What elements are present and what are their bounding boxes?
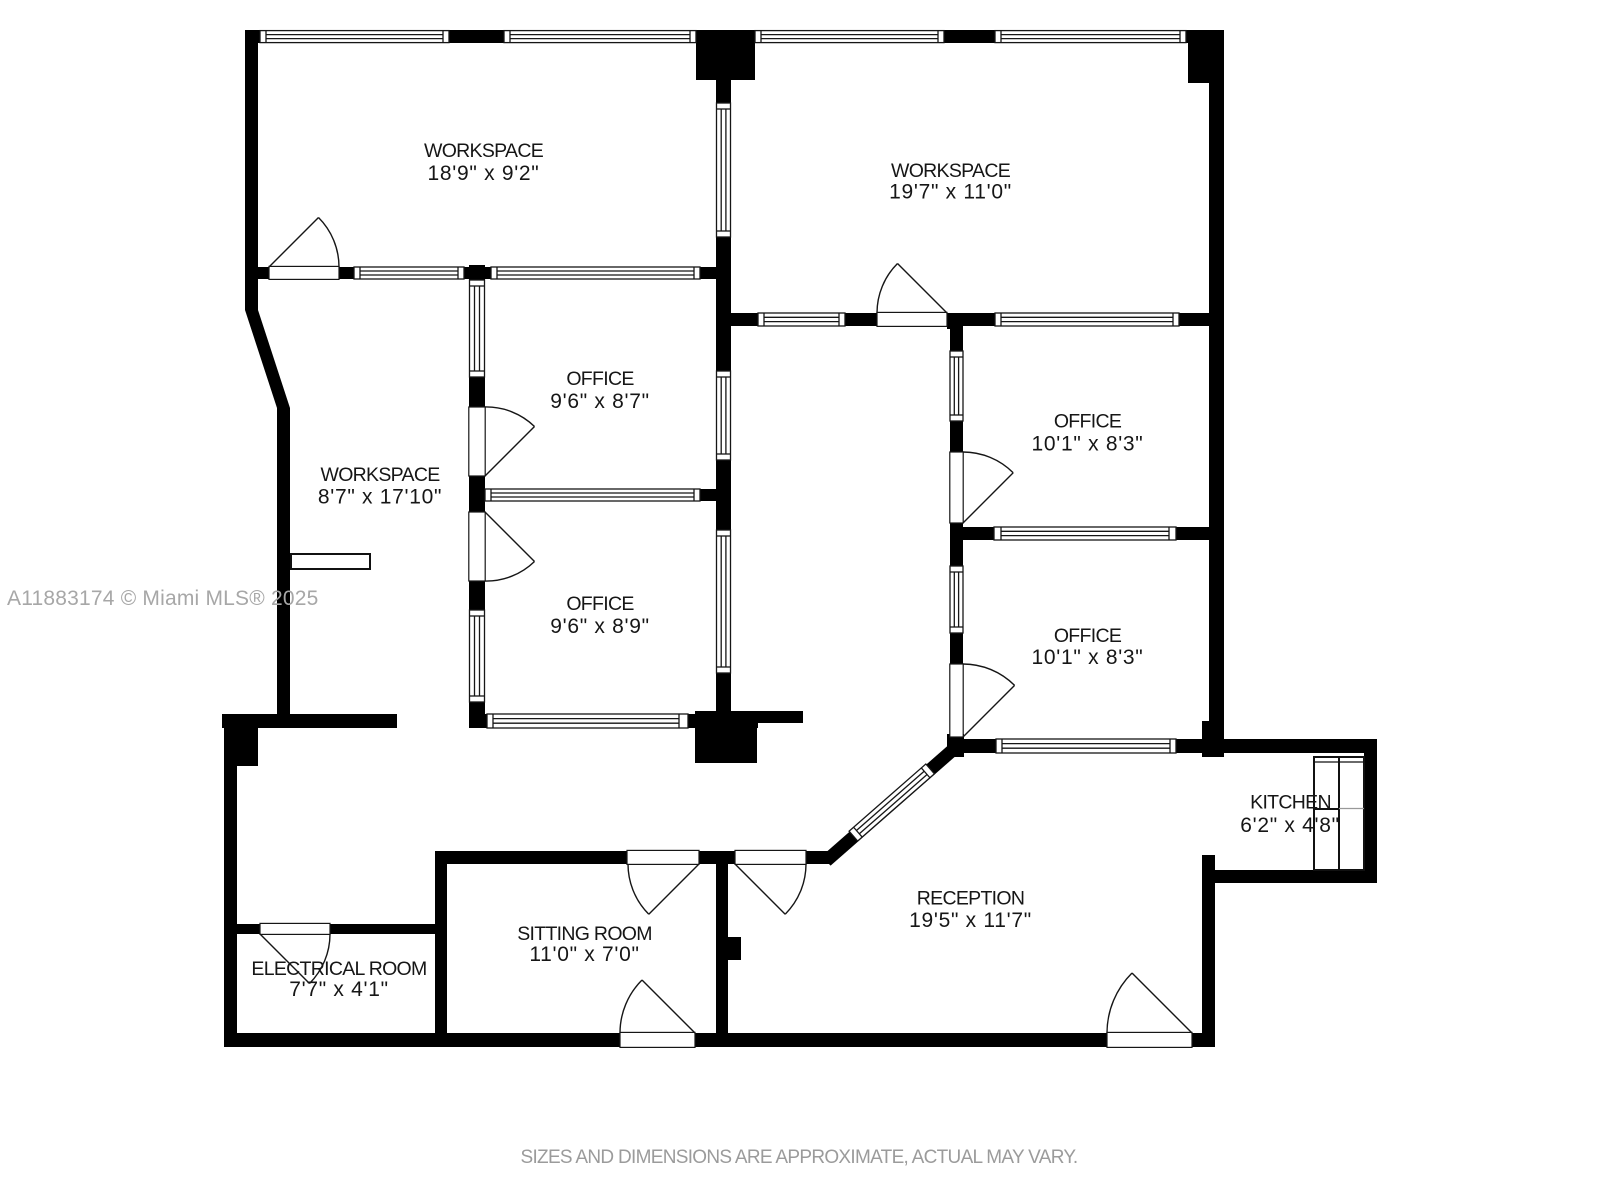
svg-text:RECEPTION: RECEPTION [917, 888, 1024, 910]
svg-text:8'7" x 17'10": 8'7" x 17'10" [318, 486, 442, 509]
svg-text:9'6" x 8'7": 9'6" x 8'7" [550, 390, 650, 413]
svg-text:11'0" x 7'0": 11'0" x 7'0" [529, 943, 639, 966]
svg-text:OFFICE: OFFICE [1054, 625, 1122, 647]
svg-text:A11883174 © Miami MLS® 2025: A11883174 © Miami MLS® 2025 [7, 587, 318, 610]
svg-text:SIZES AND DIMENSIONS ARE APPRO: SIZES AND DIMENSIONS ARE APPROXIMATE, AC… [521, 1147, 1078, 1168]
svg-text:WORKSPACE: WORKSPACE [424, 140, 544, 162]
svg-text:19'5" x 11'7": 19'5" x 11'7" [909, 909, 1032, 932]
svg-text:WORKSPACE: WORKSPACE [320, 464, 440, 486]
svg-text:18'9" x 9'2": 18'9" x 9'2" [428, 162, 540, 185]
svg-text:10'1" x 8'3": 10'1" x 8'3" [1032, 433, 1144, 456]
svg-text:KITCHEN: KITCHEN [1250, 792, 1331, 814]
svg-text:SITTING ROOM: SITTING ROOM [517, 923, 652, 945]
svg-text:19'7" x 11'0": 19'7" x 11'0" [889, 181, 1012, 204]
svg-text:10'1" x 8'3": 10'1" x 8'3" [1032, 646, 1144, 669]
svg-text:OFFICE: OFFICE [1054, 411, 1122, 433]
svg-text:OFFICE: OFFICE [566, 593, 634, 615]
svg-text:OFFICE: OFFICE [566, 368, 634, 390]
svg-text:WORKSPACE: WORKSPACE [891, 160, 1011, 182]
svg-text:ELECTRICAL ROOM: ELECTRICAL ROOM [251, 958, 426, 980]
svg-text:9'6" x 8'9": 9'6" x 8'9" [550, 615, 650, 638]
svg-text:7'7" x 4'1": 7'7" x 4'1" [289, 978, 389, 1001]
svg-text:6'2" x 4'8": 6'2" x 4'8" [1240, 814, 1340, 837]
